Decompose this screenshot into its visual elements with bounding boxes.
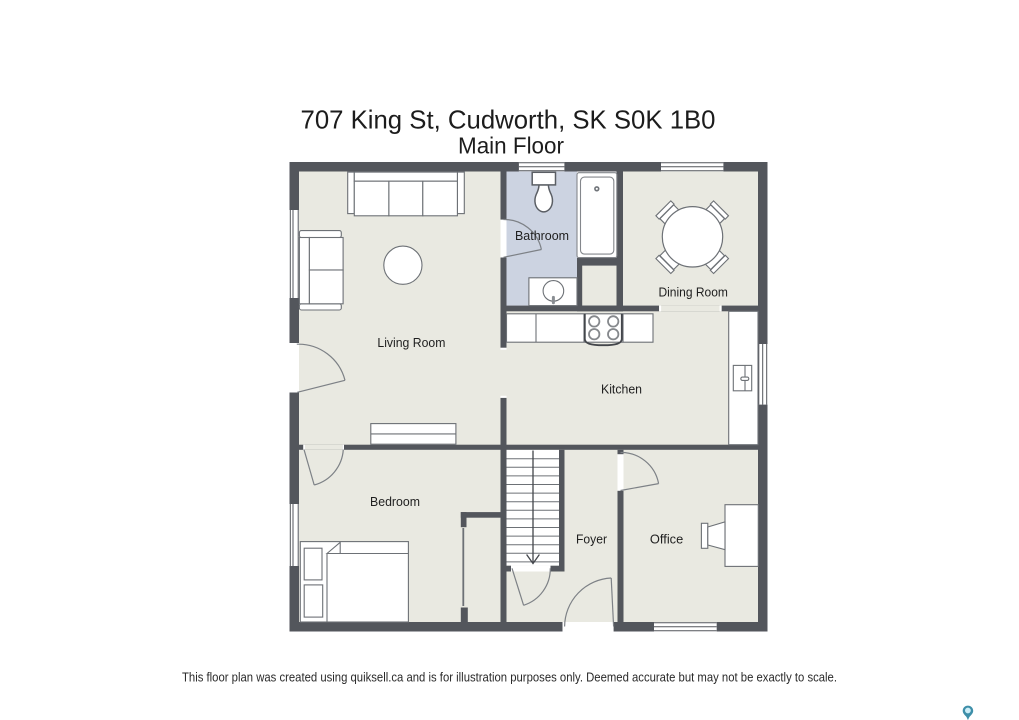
svg-text:Kitchen: Kitchen — [601, 383, 642, 397]
svg-text:Bedroom: Bedroom — [370, 495, 420, 509]
svg-text:Foyer: Foyer — [576, 533, 607, 547]
svg-text:Living Room: Living Room — [377, 336, 445, 350]
svg-text:707 King St, Cudworth, SK S0K: 707 King St, Cudworth, SK S0K 1B0 — [301, 104, 716, 134]
svg-text:Office: Office — [650, 533, 683, 547]
svg-text:Dining Room: Dining Room — [658, 286, 728, 300]
svg-text:Bathroom: Bathroom — [515, 229, 569, 243]
svg-text:This floor plan was created us: This floor plan was created using quikse… — [182, 670, 837, 685]
svg-text:Main Floor: Main Floor — [458, 133, 564, 159]
